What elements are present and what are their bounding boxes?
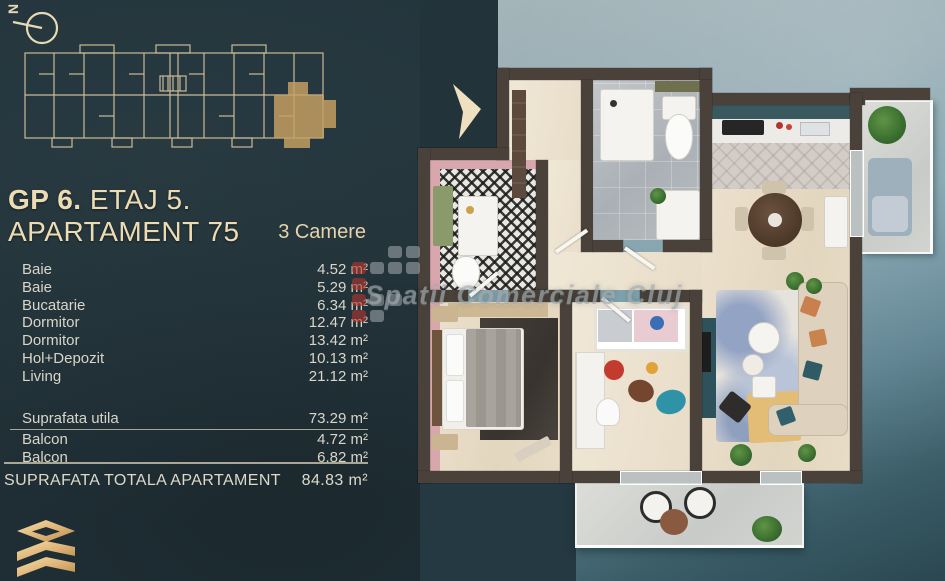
- living-plant: [798, 444, 816, 462]
- balcony-glass-door: [850, 150, 864, 237]
- title-project: GP 6.: [8, 184, 82, 215]
- gold-layers-logo: [14, 520, 78, 581]
- summary-area: 73.29 m²: [309, 410, 368, 428]
- sofa-pillow-orange: [809, 329, 828, 348]
- table-plate: [768, 213, 782, 227]
- dining-chair: [735, 207, 748, 231]
- table-row: Baie4.52 m²: [22, 261, 368, 279]
- kitchen-decor: [786, 124, 792, 130]
- rooms-count-subtitle: 3 Camere: [8, 221, 366, 244]
- total-value: 84.83 m²: [302, 472, 368, 490]
- rug-dot-red: [604, 360, 624, 380]
- shower-tray: [600, 89, 654, 161]
- room-area: 10.13 m²: [309, 350, 368, 368]
- lounge-cushion: [872, 196, 908, 232]
- living-plant: [730, 444, 752, 466]
- background-patch: [420, 470, 576, 581]
- kids-chair: [596, 398, 620, 426]
- room-label: Living: [22, 368, 309, 386]
- wall: [497, 68, 712, 80]
- summary-label: Suprafata utila: [22, 410, 309, 428]
- chevron-right-icon[interactable]: [449, 84, 483, 140]
- table-row: Suprafata utila73.29 m²: [22, 410, 368, 428]
- room-area: 13.42 m²: [309, 332, 368, 350]
- wall: [663, 240, 712, 252]
- table-row: Balcon4.72 m²: [22, 431, 368, 449]
- nightstand: [432, 434, 458, 450]
- total-label: SUPRAFATA TOTALA APARTAMENT: [4, 472, 302, 490]
- wall: [700, 80, 712, 252]
- toilet-bowl: [665, 114, 693, 160]
- wall: [593, 240, 623, 252]
- watermark-text: Spatii Comerciale Cluj: [365, 280, 683, 311]
- wall: [560, 290, 572, 483]
- floorplan-presentation: N GP 6. E: [0, 0, 945, 581]
- dining-chair: [801, 207, 814, 231]
- side-table: [742, 354, 764, 376]
- wall: [700, 93, 865, 105]
- room-label: Baie: [22, 279, 317, 297]
- balcony-plant: [868, 106, 906, 144]
- room-label: Dormitor: [22, 332, 309, 350]
- balcony-chair: [684, 487, 716, 519]
- room-area: 21.12 m²: [309, 368, 368, 386]
- table-row: Balcon6.82 m²: [22, 449, 368, 467]
- table-row: Hol+Depozit10.13 m²: [22, 350, 368, 368]
- hall-wardrobe: [512, 90, 526, 198]
- svg-text:N: N: [8, 4, 21, 14]
- bath2-vanity: [458, 196, 498, 256]
- wall: [581, 80, 593, 252]
- summary-table: Suprafata utila73.29 m²: [22, 410, 368, 428]
- bed-pillow: [446, 380, 464, 422]
- tray-table: [752, 376, 776, 398]
- table-row: Bucatarie6.34 m²: [22, 297, 368, 315]
- cooktop: [722, 120, 764, 135]
- sideboard: [824, 196, 848, 248]
- room-label: Hol+Depozit: [22, 350, 309, 368]
- crib-dot: [650, 316, 664, 330]
- kitchen-back-wall: [712, 105, 850, 119]
- total-row: SUPRAFATA TOTALA APARTAMENT 84.83 m²: [4, 472, 368, 490]
- balcony-plant: [752, 516, 782, 542]
- coffee-table: [748, 322, 780, 354]
- balcony-table: [660, 509, 688, 535]
- bath-shelf: [655, 81, 700, 92]
- divider: [4, 462, 368, 464]
- crib-mat: [598, 310, 632, 342]
- summary-label: Balcon: [22, 431, 317, 449]
- wall: [850, 88, 930, 100]
- bed-blanket: [466, 329, 521, 427]
- kitchen-decor: [776, 122, 783, 129]
- table-row: Dormitor13.42 m²: [22, 332, 368, 350]
- kitchen-sink: [800, 122, 830, 136]
- wall: [418, 148, 509, 160]
- bed-headboard: [432, 330, 442, 426]
- room-label: Bucatarie: [22, 297, 317, 315]
- bed-pillow: [446, 334, 464, 376]
- balcony-glass-door: [760, 471, 802, 485]
- summary-label: Balcon: [22, 449, 317, 467]
- divider: [10, 429, 368, 430]
- table-row: Living21.12 m²: [22, 368, 368, 386]
- dining-chair: [762, 247, 786, 260]
- bath2-cabinet: [433, 186, 453, 246]
- shower-drain: [610, 100, 617, 107]
- vanity-decor: [466, 206, 474, 214]
- wall: [690, 290, 702, 483]
- table-row: Baie5.29 m²: [22, 279, 368, 297]
- wall: [497, 68, 509, 160]
- building-overview-plan: [22, 38, 344, 158]
- bath-plant: [650, 188, 666, 204]
- balcony-glass-door: [620, 471, 702, 485]
- rug-dot-orange: [646, 362, 658, 374]
- living-plant: [806, 278, 822, 294]
- room-label: Dormitor: [22, 314, 309, 332]
- summary-area: 6.82 m²: [317, 449, 368, 467]
- room-label: Baie: [22, 261, 317, 279]
- summary-area: 4.72 m²: [317, 431, 368, 449]
- tv-screen: [702, 332, 711, 372]
- room-area-table: Baie4.52 m² Baie5.29 m² Bucatarie6.34 m²…: [22, 261, 368, 386]
- table-row: Dormitor12.47 m²: [22, 314, 368, 332]
